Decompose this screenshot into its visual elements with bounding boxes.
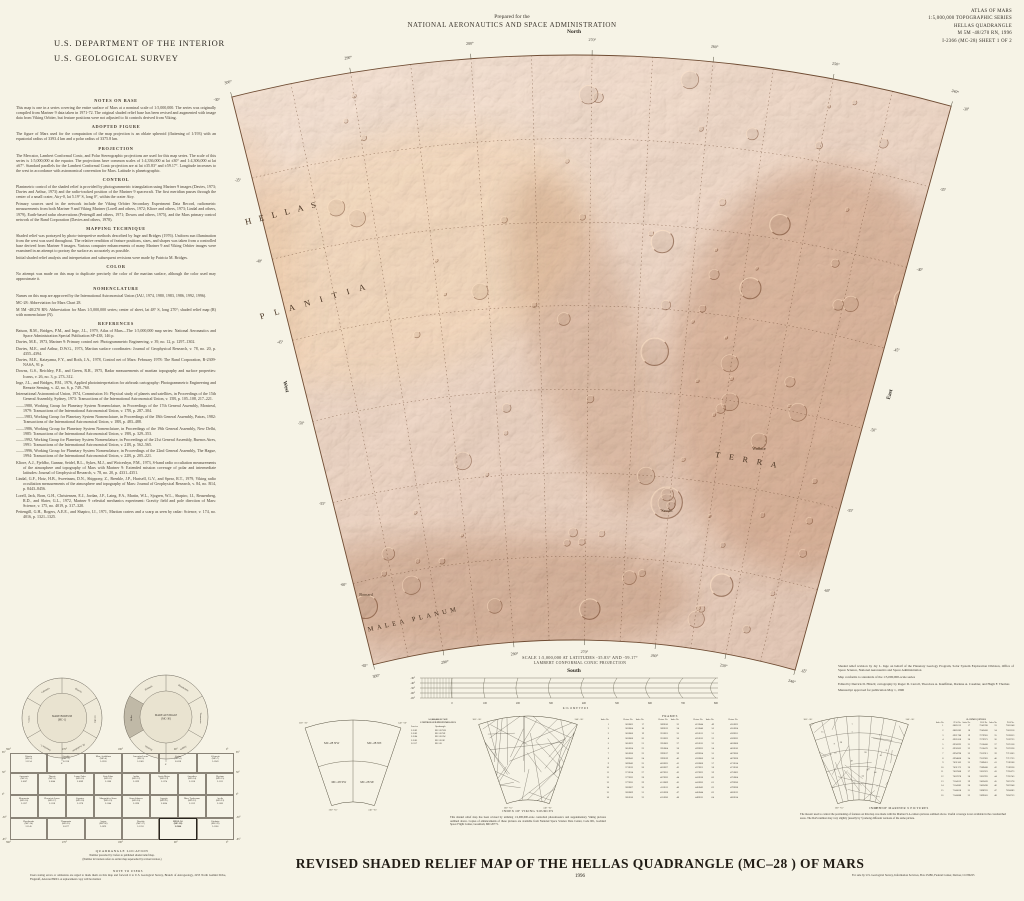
svg-text:-60°: -60° xyxy=(340,583,347,587)
credit-line: Manuscript approved for publication May … xyxy=(838,688,1014,692)
quad-cell: Syrtis Major(MC-13)I-1174 xyxy=(150,773,178,795)
svg-text:240°: 240° xyxy=(951,88,960,95)
svg-text:-50°: -50° xyxy=(870,429,877,433)
svg-text:East: East xyxy=(886,389,895,401)
map-sheet: U.S. DEPARTMENT OF THE INTERIOR U.S. GEO… xyxy=(0,0,1024,901)
svg-text:100: 100 xyxy=(483,702,488,705)
viking-paragraph: This shaded relief map has been revised … xyxy=(450,816,606,827)
quad-cell: Mare Acidalium(MC-4)I-1228 xyxy=(85,753,122,773)
svg-text:240° -65°: 240° -65° xyxy=(368,808,377,811)
svg-text:38: 38 xyxy=(864,752,866,754)
svg-text:-65°: -65° xyxy=(411,697,416,700)
mariner-paragraph: The mosaic used to control the positioni… xyxy=(800,813,1006,820)
svg-text:-60°: -60° xyxy=(824,589,831,593)
svg-text:-40°: -40° xyxy=(256,260,263,264)
quad-grid-lat-label: 30° xyxy=(2,771,6,774)
quad-cell: Arcadia(MC-3)I-1218 xyxy=(47,753,84,773)
svg-text:300°: 300° xyxy=(372,672,381,679)
svg-text:28: 28 xyxy=(840,742,842,744)
svg-text:-30°: -30° xyxy=(214,98,221,102)
quad-cell: Amenthes(MC-14)I-1116 xyxy=(178,773,206,795)
quad-grid-lon-label: 270° xyxy=(62,841,67,844)
quad-cell: Margaritifer Sinus(MC-19)I-1144 xyxy=(94,795,122,818)
quad-grid-lon-label: 180° xyxy=(118,841,123,844)
svg-text:(MC-1): (MC-1) xyxy=(58,718,66,721)
mariner9-index-diagram: 300° -30°240° -30°300° -65°240° -65°3813… xyxy=(784,712,934,812)
svg-text:39: 39 xyxy=(851,761,853,763)
quad-grid-lat-label: -30° xyxy=(236,816,241,819)
quad-cell: Aeolis(MC-23)I-1165 xyxy=(206,795,234,818)
svg-text:42: 42 xyxy=(880,755,882,757)
viking-sources-diagram: 300° -30°240° -30°300° -65°240° -65° xyxy=(458,712,598,812)
viking-frames-table: FRAMESIndex No.Picture No.Index No.Pictu… xyxy=(600,714,740,801)
svg-text:240°: 240° xyxy=(788,678,797,685)
variable-scale-bar: -30°-40°-50°-60°-65°01002003004005006007… xyxy=(400,666,740,712)
svg-text:300°: 300° xyxy=(224,79,233,86)
quad-cell: Memnonia(MC-16)I-1137 xyxy=(10,795,38,818)
quad-grid-lat-label: -30° xyxy=(2,816,7,819)
svg-text:1: 1 xyxy=(851,732,852,734)
svg-text:400: 400 xyxy=(582,702,587,705)
crater-label: Barnard xyxy=(359,592,373,597)
sale-fine-print: For sale by U.S. Geological Survey, Info… xyxy=(852,874,1012,878)
quad-cell: Elysium(MC-15)I-1111 xyxy=(206,773,234,795)
quad-cell: Eridania(MC-29)I-1106 xyxy=(197,818,234,840)
shaded-relief-map: 300°300°290°290°280°280°270°270°260°260°… xyxy=(0,0,1024,712)
svg-text:600: 600 xyxy=(648,702,653,705)
svg-text:-55°: -55° xyxy=(847,509,854,513)
quad-cell: Lunae Palus(MC-10)I-1089 xyxy=(66,773,94,795)
svg-text:500: 500 xyxy=(615,702,620,705)
credits-block: Shaded relief revision by Jay L. Inge on… xyxy=(838,664,1014,695)
svg-text:3: 3 xyxy=(876,785,877,787)
credit-line: Map conforms to standards of the 1:5,000… xyxy=(838,675,1014,679)
quad-cell: Noachis(MC-27)I-1210 xyxy=(122,818,159,840)
svg-text:240° -30°: 240° -30° xyxy=(906,718,915,721)
quad-cell: Tharsis(MC-9)I-1044 xyxy=(38,773,66,795)
quad-grid-lon-label: 90° xyxy=(174,841,178,844)
svg-text:-50°: -50° xyxy=(411,687,416,690)
quad-grid-lon-label: 0° xyxy=(226,748,228,751)
quad-cell: Sinus Sabaeus(MC-20)I-1196 xyxy=(122,795,150,818)
quad-grid-lat-label: 0° xyxy=(2,793,4,796)
svg-text:-40°: -40° xyxy=(917,268,924,272)
svg-text:-60°: -60° xyxy=(411,692,416,695)
quad-cell: Ismenius Lacus(MC-5)I-1065 xyxy=(122,753,159,773)
svg-text:8: 8 xyxy=(886,750,887,752)
svg-text:-30°: -30° xyxy=(963,107,970,111)
svg-text:-35°: -35° xyxy=(235,179,242,183)
svg-text:10: 10 xyxy=(834,752,836,754)
svg-text:(MC-30): (MC-30) xyxy=(161,717,171,720)
quad-grid-lon-label: 180° xyxy=(118,748,123,751)
svg-text:13: 13 xyxy=(821,731,823,733)
svg-text:290°: 290° xyxy=(344,54,353,60)
quad-cell: Mare Tyrrhenum(MC-22)I-1112 xyxy=(178,795,206,818)
svg-text:44: 44 xyxy=(874,772,876,774)
svg-text:Thaumasia: Thaumasia xyxy=(199,713,202,725)
quad-cell: Amazonis(MC-8)I-1087 xyxy=(10,773,38,795)
svg-text:MC-28 SE: MC-28 SE xyxy=(360,780,374,784)
viking-caption: INDEX OF VIKING SOURCES xyxy=(455,809,601,813)
svg-text:Casius: Casius xyxy=(28,716,31,723)
quad-cell: Cebrenia(MC-7)I-1249 xyxy=(197,753,234,773)
quad-cell: Oxia Palus(MC-11)I-1186 xyxy=(94,773,122,795)
quad-cell-current: HELLAS(MC-28)I-2366 xyxy=(159,818,196,840)
svg-text:270°: 270° xyxy=(588,37,596,42)
svg-text:240° -30°: 240° -30° xyxy=(575,718,584,721)
quad-cell: Thaumasia(MC-25)I-1077 xyxy=(47,818,84,840)
svg-text:MC-28 SW: MC-28 SW xyxy=(331,780,346,784)
quad-cell: Argyre(MC-26)I-1091 xyxy=(85,818,122,840)
quad-cell: Coprates(MC-18)I-1178 xyxy=(66,795,94,818)
quad-grid-lat-label: 0° xyxy=(236,793,238,796)
quad-cell: Arabia(MC-12)I-1199 xyxy=(122,773,150,795)
quad-cell: Diacria(MC-2)I-1154 xyxy=(10,753,47,773)
svg-text:MC-28 NE: MC-28 NE xyxy=(367,741,381,745)
mariner-caption: INDEX OF MARINER 9 PICTURES xyxy=(784,806,1014,810)
svg-text:300: 300 xyxy=(549,702,554,705)
svg-text:2: 2 xyxy=(854,782,855,784)
svg-text:300° -30°: 300° -30° xyxy=(299,721,308,724)
map-terrain xyxy=(100,20,1000,700)
svg-text:280°: 280° xyxy=(466,41,474,47)
svg-text:-45°: -45° xyxy=(893,348,900,352)
credit-line: Edited by Derrick D. Hirsch; cartography… xyxy=(838,682,1014,686)
quad-grid-lat-label: 30° xyxy=(236,771,240,774)
svg-text:7: 7 xyxy=(852,724,853,726)
svg-text:300° -30°: 300° -30° xyxy=(473,718,482,721)
quad-grid-lon-label: 90° xyxy=(174,748,178,751)
svg-text:KILOMETERS: KILOMETERS xyxy=(563,707,589,710)
svg-text:-45°: -45° xyxy=(277,340,284,344)
svg-text:-50°: -50° xyxy=(298,421,305,425)
svg-text:0: 0 xyxy=(451,702,453,705)
svg-text:-65°: -65° xyxy=(801,670,808,674)
sheet-title: REVISED SHADED RELIEF MAP OF THE HELLAS … xyxy=(150,856,1010,872)
svg-text:West: West xyxy=(281,380,290,393)
svg-text:Arcadia: Arcadia xyxy=(93,715,96,724)
credit-line: Shaded relief revision by Jay L. Inge on… xyxy=(838,664,1014,673)
scale-title: SCALE 1:5,000,000 AT LATITUDES -35.83° A… xyxy=(360,655,800,666)
svg-text:300° -30°: 300° -30° xyxy=(804,718,813,721)
svg-text:-40°: -40° xyxy=(411,682,416,685)
quad-grid-lat-label: 65° xyxy=(236,751,240,754)
svg-text:5: 5 xyxy=(879,735,880,737)
svg-text:9: 9 xyxy=(834,744,835,746)
svg-text:240° -30°: 240° -30° xyxy=(398,721,407,724)
crater-label: Wallace xyxy=(752,446,766,451)
svg-text:250°: 250° xyxy=(832,61,841,67)
quad-grid-lon-label: 360° xyxy=(6,841,11,844)
quadrangle-location-grid: Diacria(MC-2)I-1154Arcadia(MC-3)I-1218Ma… xyxy=(10,753,234,840)
quad-cell: Phaethontis(MC-24)I-1145 xyxy=(10,818,47,840)
svg-text:-30°: -30° xyxy=(411,677,416,680)
crater-label: Secchi xyxy=(661,508,673,513)
svg-text:North: North xyxy=(567,29,581,35)
svg-text:-55°: -55° xyxy=(319,502,326,506)
quad-grid-lon-label: 0° xyxy=(226,841,228,844)
svg-text:200: 200 xyxy=(516,702,521,705)
svg-text:-35°: -35° xyxy=(940,188,947,192)
svg-text:34: 34 xyxy=(862,775,864,777)
svg-text:300° -65°: 300° -65° xyxy=(329,808,338,811)
mariner9-das-table: A-camera picturesIndex No.DAS No.Index N… xyxy=(936,718,1016,798)
svg-text:260°: 260° xyxy=(711,44,719,50)
mc28-subdivision-diagram: 300° -30°240° -30°300° -65°240° -65°MC-2… xyxy=(283,714,423,814)
svg-text:270°: 270° xyxy=(581,649,589,654)
svg-text:Hellas: Hellas xyxy=(130,715,133,721)
quad-cell: Casius(MC-6)I-1038 xyxy=(159,753,196,773)
quad-cell: Phoenicis Lacus(MC-17)I-1118 xyxy=(38,795,66,818)
quad-cell: Iapygia(MC-21)I-1064 xyxy=(150,795,178,818)
quad-grid-lat-label: -65° xyxy=(236,838,241,841)
svg-text:700: 700 xyxy=(681,702,686,705)
quad-grid-lat-label: 65° xyxy=(2,751,6,754)
svg-text:800: 800 xyxy=(714,702,719,705)
quad-grid-lon-label: 270° xyxy=(62,748,67,751)
svg-text:31: 31 xyxy=(868,769,870,771)
quad-grid-lon-label: 360° xyxy=(6,748,11,751)
svg-text:MC-28 NW: MC-28 NW xyxy=(324,741,339,745)
